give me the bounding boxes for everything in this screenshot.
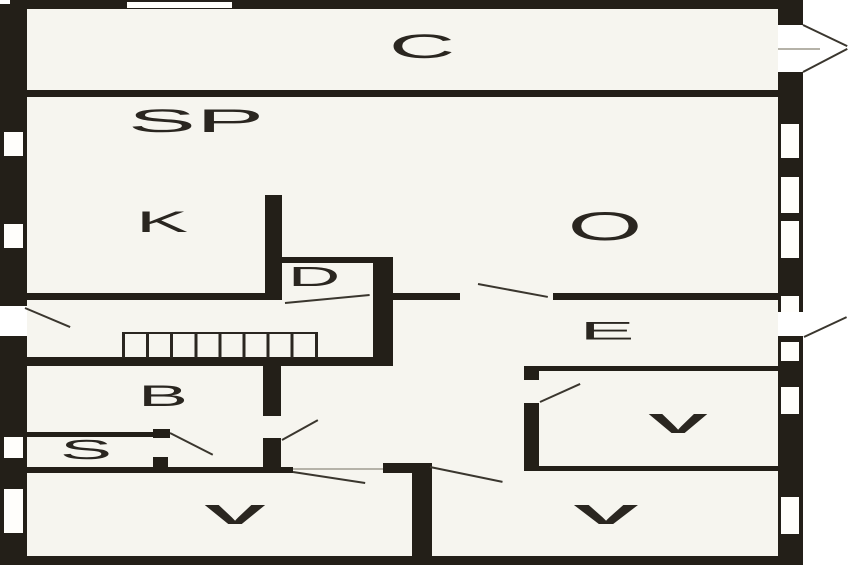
window-right-3 <box>781 221 799 258</box>
room-label-sp: SP <box>128 105 265 137</box>
wall-corridor-bottom <box>23 357 393 366</box>
room-label-v-bottom-left: V <box>204 501 266 529</box>
wall-room-s-stub-top <box>153 429 170 438</box>
window-right-6 <box>781 387 799 414</box>
room-label-k: K <box>136 208 188 238</box>
wall-bottom-divider-vertical <box>412 463 432 563</box>
wall-room-b-right-lower <box>263 438 281 470</box>
entrance-arrow-icon <box>803 24 848 47</box>
wall-room-v-middle-top <box>539 366 778 371</box>
wall-room-k-partition <box>265 195 282 300</box>
entrance-arrow-midline <box>778 48 820 50</box>
room-label-c: C <box>389 30 455 64</box>
wall-room-c-bottom <box>27 90 778 97</box>
door-opening-right-exterior <box>778 312 803 336</box>
wall-exterior-bottom <box>0 556 803 565</box>
wall-exterior-right <box>778 0 803 565</box>
entrance-arrow-icon <box>803 48 848 73</box>
window-right-7 <box>781 497 799 534</box>
door-swing-right-exterior <box>804 316 847 338</box>
room-label-s: S <box>60 436 112 464</box>
wall-room-b-right-upper <box>263 360 281 416</box>
room-label-d: D <box>288 263 341 291</box>
threshold-line-bottom-left <box>293 468 383 470</box>
window-left-4 <box>4 489 23 533</box>
window-right-1 <box>781 124 799 158</box>
wall-corridor-top-middle <box>393 293 460 300</box>
room-label-v-middle-right: V <box>648 410 708 438</box>
window-left-3 <box>4 437 23 458</box>
window-left-1 <box>4 132 23 156</box>
window-right-4 <box>781 296 799 312</box>
wall-room-v-middle-left <box>524 403 539 470</box>
wall-exterior-top <box>10 0 778 9</box>
wall-room-b-bottom <box>23 467 293 473</box>
window-top-1 <box>127 2 232 8</box>
door-opening-left-exterior <box>0 306 27 336</box>
wall-corridor-top-left <box>23 293 282 300</box>
window-right-5 <box>781 342 799 361</box>
window-left-2 <box>4 224 23 248</box>
wall-room-v-middle-left-stub <box>524 366 539 380</box>
room-label-o: O <box>568 207 643 247</box>
floor-plan: C SP K O D E B S V V V <box>0 0 848 565</box>
wall-exterior-left <box>0 4 27 565</box>
wall-corridor-top-right <box>553 293 778 300</box>
room-label-b: B <box>138 382 188 412</box>
staircase <box>122 332 318 358</box>
room-label-e: E <box>579 320 634 345</box>
floor-area <box>9 4 803 561</box>
wall-room-d-right <box>373 257 393 366</box>
wall-room-v-middle-bottom <box>524 466 778 471</box>
window-right-2 <box>781 177 799 213</box>
wall-room-s-stub-bottom <box>153 457 168 467</box>
room-label-v-bottom-right: V <box>573 501 638 529</box>
